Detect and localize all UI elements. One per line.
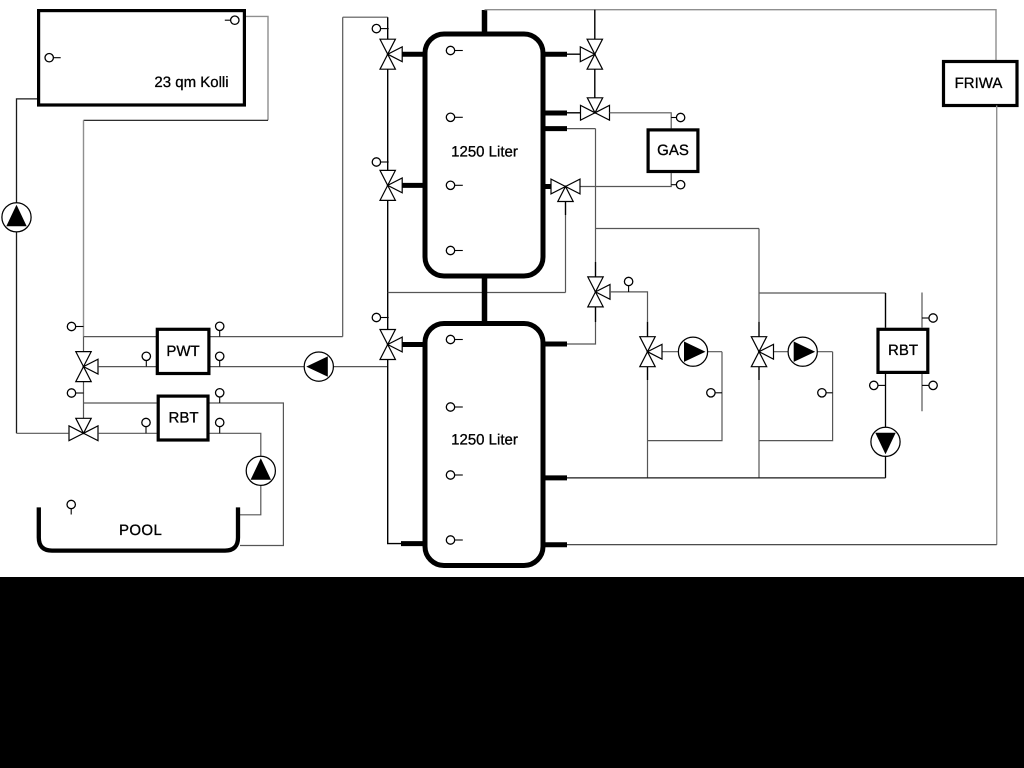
svg-text:PWT: PWT [166, 343, 199, 360]
svg-text:1250 Liter: 1250 Liter [451, 144, 518, 161]
svg-text:1250 Liter: 1250 Liter [451, 431, 518, 448]
svg-text:23 qm Kolli: 23 qm Kolli [154, 74, 228, 91]
svg-text:GAS: GAS [657, 142, 689, 159]
svg-text:POOL: POOL [119, 522, 162, 539]
svg-text:RBT: RBT [169, 410, 199, 427]
svg-text:RBT: RBT [888, 342, 918, 359]
svg-text:FRIWA: FRIWA [955, 75, 1003, 92]
